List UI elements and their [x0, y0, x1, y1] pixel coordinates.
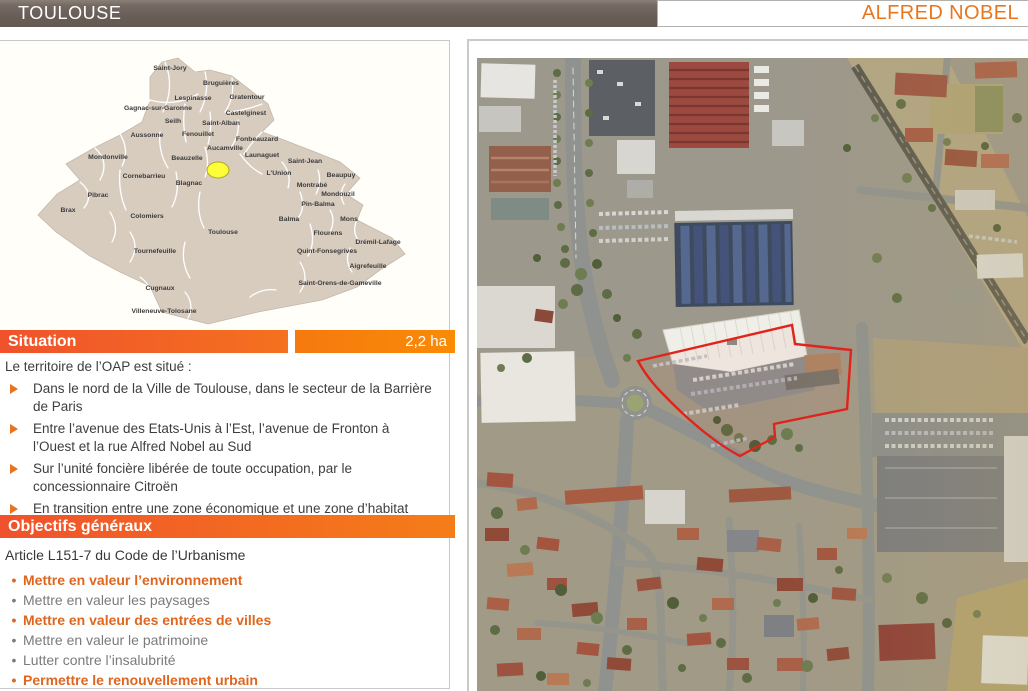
objectif-item: •Mettre en valeur l’environnement: [5, 570, 448, 590]
map-label: Villeneuve-Tolosane: [131, 308, 196, 315]
map-label: Aucamville: [207, 145, 243, 152]
objectif-item-text: Mettre en valeur des entrées de villes: [23, 610, 271, 630]
map-label: Pin-Balma: [301, 201, 334, 208]
map-label: Cornebarrieu: [123, 173, 166, 180]
map-label: Castelginest: [226, 110, 267, 117]
aerial-photo-svg: [477, 58, 1028, 691]
situation-bullet-text: Dans le nord de la Ville de Toulouse, da…: [33, 380, 434, 416]
map-label: Beaupuy: [327, 172, 356, 179]
objectif-item-text: Permettre le renouvellement urbain: [23, 670, 258, 690]
situation-bullet: Entre l’avenue des Etats-Unis à l’Est, l…: [5, 420, 448, 456]
map-label: Saint-Jory: [153, 65, 186, 72]
site-location-marker: [207, 162, 229, 178]
objectif-item: •Mettre en valeur le patrimoine: [5, 630, 448, 650]
bullet-dot-icon: •: [5, 570, 23, 590]
objectifs-list: •Mettre en valeur l’environnement•Mettre…: [5, 570, 448, 690]
map-label: Blagnac: [176, 180, 203, 187]
aerial-photo: [477, 58, 1028, 691]
map-label: Cugnaux: [145, 285, 174, 292]
bullet-triangle-icon: [10, 384, 18, 394]
map-label: Balma: [279, 216, 300, 223]
objectif-item: •Lutter contre l’insalubrité: [5, 650, 448, 670]
bullet-dot-icon: •: [5, 650, 23, 670]
map-label: Aussonne: [131, 132, 164, 139]
map-label: Tournefeuille: [134, 248, 176, 255]
objectif-item-text: Mettre en valeur l’environnement: [23, 570, 242, 590]
bullet-triangle-icon: [10, 504, 18, 514]
area-badge: 2,2 ha: [295, 330, 455, 353]
communes-map-panel: Saint-JoryBruguièresLespinasseGratentour…: [0, 40, 449, 330]
bullet-dot-icon: •: [5, 670, 23, 690]
bullet-dot-icon: •: [5, 590, 23, 610]
situation-bullet-text: Sur l’unité foncière libérée de toute oc…: [33, 460, 434, 496]
map-label: Lespinasse: [174, 95, 211, 102]
situation-bullet-list: Dans le nord de la Ville de Toulouse, da…: [5, 380, 448, 522]
situation-bullet-text: Entre l’avenue des Etats-Unis à l’Est, l…: [33, 420, 434, 456]
situation-bullet: Sur l’unité foncière libérée de toute oc…: [5, 460, 448, 496]
map-label: L’Union: [267, 170, 292, 177]
map-label: Gratentour: [229, 94, 264, 101]
bullet-dot-icon: •: [5, 630, 23, 650]
map-label: Colomiers: [130, 213, 163, 220]
objectifs-header-bar: Objectifs généraux: [0, 515, 455, 538]
map-label: Aigrefeuille: [349, 263, 386, 270]
area-value: 2,2 ha: [405, 333, 447, 350]
map-label: Pibrac: [88, 192, 109, 199]
map-label: Fenouillet: [182, 131, 215, 138]
map-label: Mons: [340, 216, 358, 223]
map-label: Seilh: [165, 118, 181, 125]
map-label: Gagnac-sur-Garonne: [124, 105, 192, 112]
objectif-item-text: Mettre en valeur les paysages: [23, 590, 210, 610]
oap-document-page: TOULOUSE ALFRED NOBEL: [0, 0, 1028, 691]
map-label: Quint-Fonsegrives: [297, 248, 357, 255]
map-label: Beauzelle: [171, 155, 203, 162]
map-label: Flourens: [314, 230, 343, 237]
site-name: ALFRED NOBEL: [862, 2, 1019, 24]
map-label: Fonbeauzard: [236, 136, 278, 143]
situation-bullet: Dans le nord de la Ville de Toulouse, da…: [5, 380, 448, 416]
map-label: Brax: [60, 207, 75, 214]
commune-name: TOULOUSE: [18, 3, 122, 23]
map-label: Launaguet: [245, 152, 280, 159]
objectifs-body: Article L151-7 du Code de l’Urbanisme •M…: [5, 546, 448, 690]
situation-header-bar: Situation: [0, 330, 288, 353]
commune-header-bar: TOULOUSE: [0, 0, 657, 27]
situation-intro: Le territoire de l’OAP est situé :: [5, 359, 445, 374]
left-column-divider: [449, 40, 450, 689]
objectifs-intro: Article L151-7 du Code de l’Urbanisme: [5, 546, 448, 565]
map-label: Saint-Jean: [288, 158, 322, 165]
objectif-item: •Mettre en valeur les paysages: [5, 590, 448, 610]
bullet-triangle-icon: [10, 424, 18, 434]
map-label: Saint-Orens-de-Gameville: [298, 280, 381, 287]
objectif-item: •Permettre le renouvellement urbain: [5, 670, 448, 690]
map-label: Montrabé: [297, 182, 328, 189]
bullet-triangle-icon: [10, 464, 18, 474]
bullet-dot-icon: •: [5, 610, 23, 630]
situation-title: Situation: [8, 333, 76, 350]
communes-map: Saint-JoryBruguièresLespinasseGratentour…: [0, 42, 449, 330]
map-label: Mondonville: [88, 154, 128, 161]
objectifs-title: Objectifs généraux: [8, 518, 152, 535]
site-header-box: ALFRED NOBEL: [657, 0, 1028, 27]
map-label: Bruguières: [203, 80, 239, 87]
map-label: Saint-Alban: [202, 120, 240, 127]
map-label: Toulouse: [208, 229, 238, 236]
map-label: Mondouzil: [321, 191, 355, 198]
objectif-item-text: Lutter contre l’insalubrité: [23, 650, 176, 670]
map-label: Drémil-Lafage: [355, 239, 401, 246]
objectif-item-text: Mettre en valeur le patrimoine: [23, 630, 208, 650]
objectif-item: •Mettre en valeur des entrées de villes: [5, 610, 448, 630]
